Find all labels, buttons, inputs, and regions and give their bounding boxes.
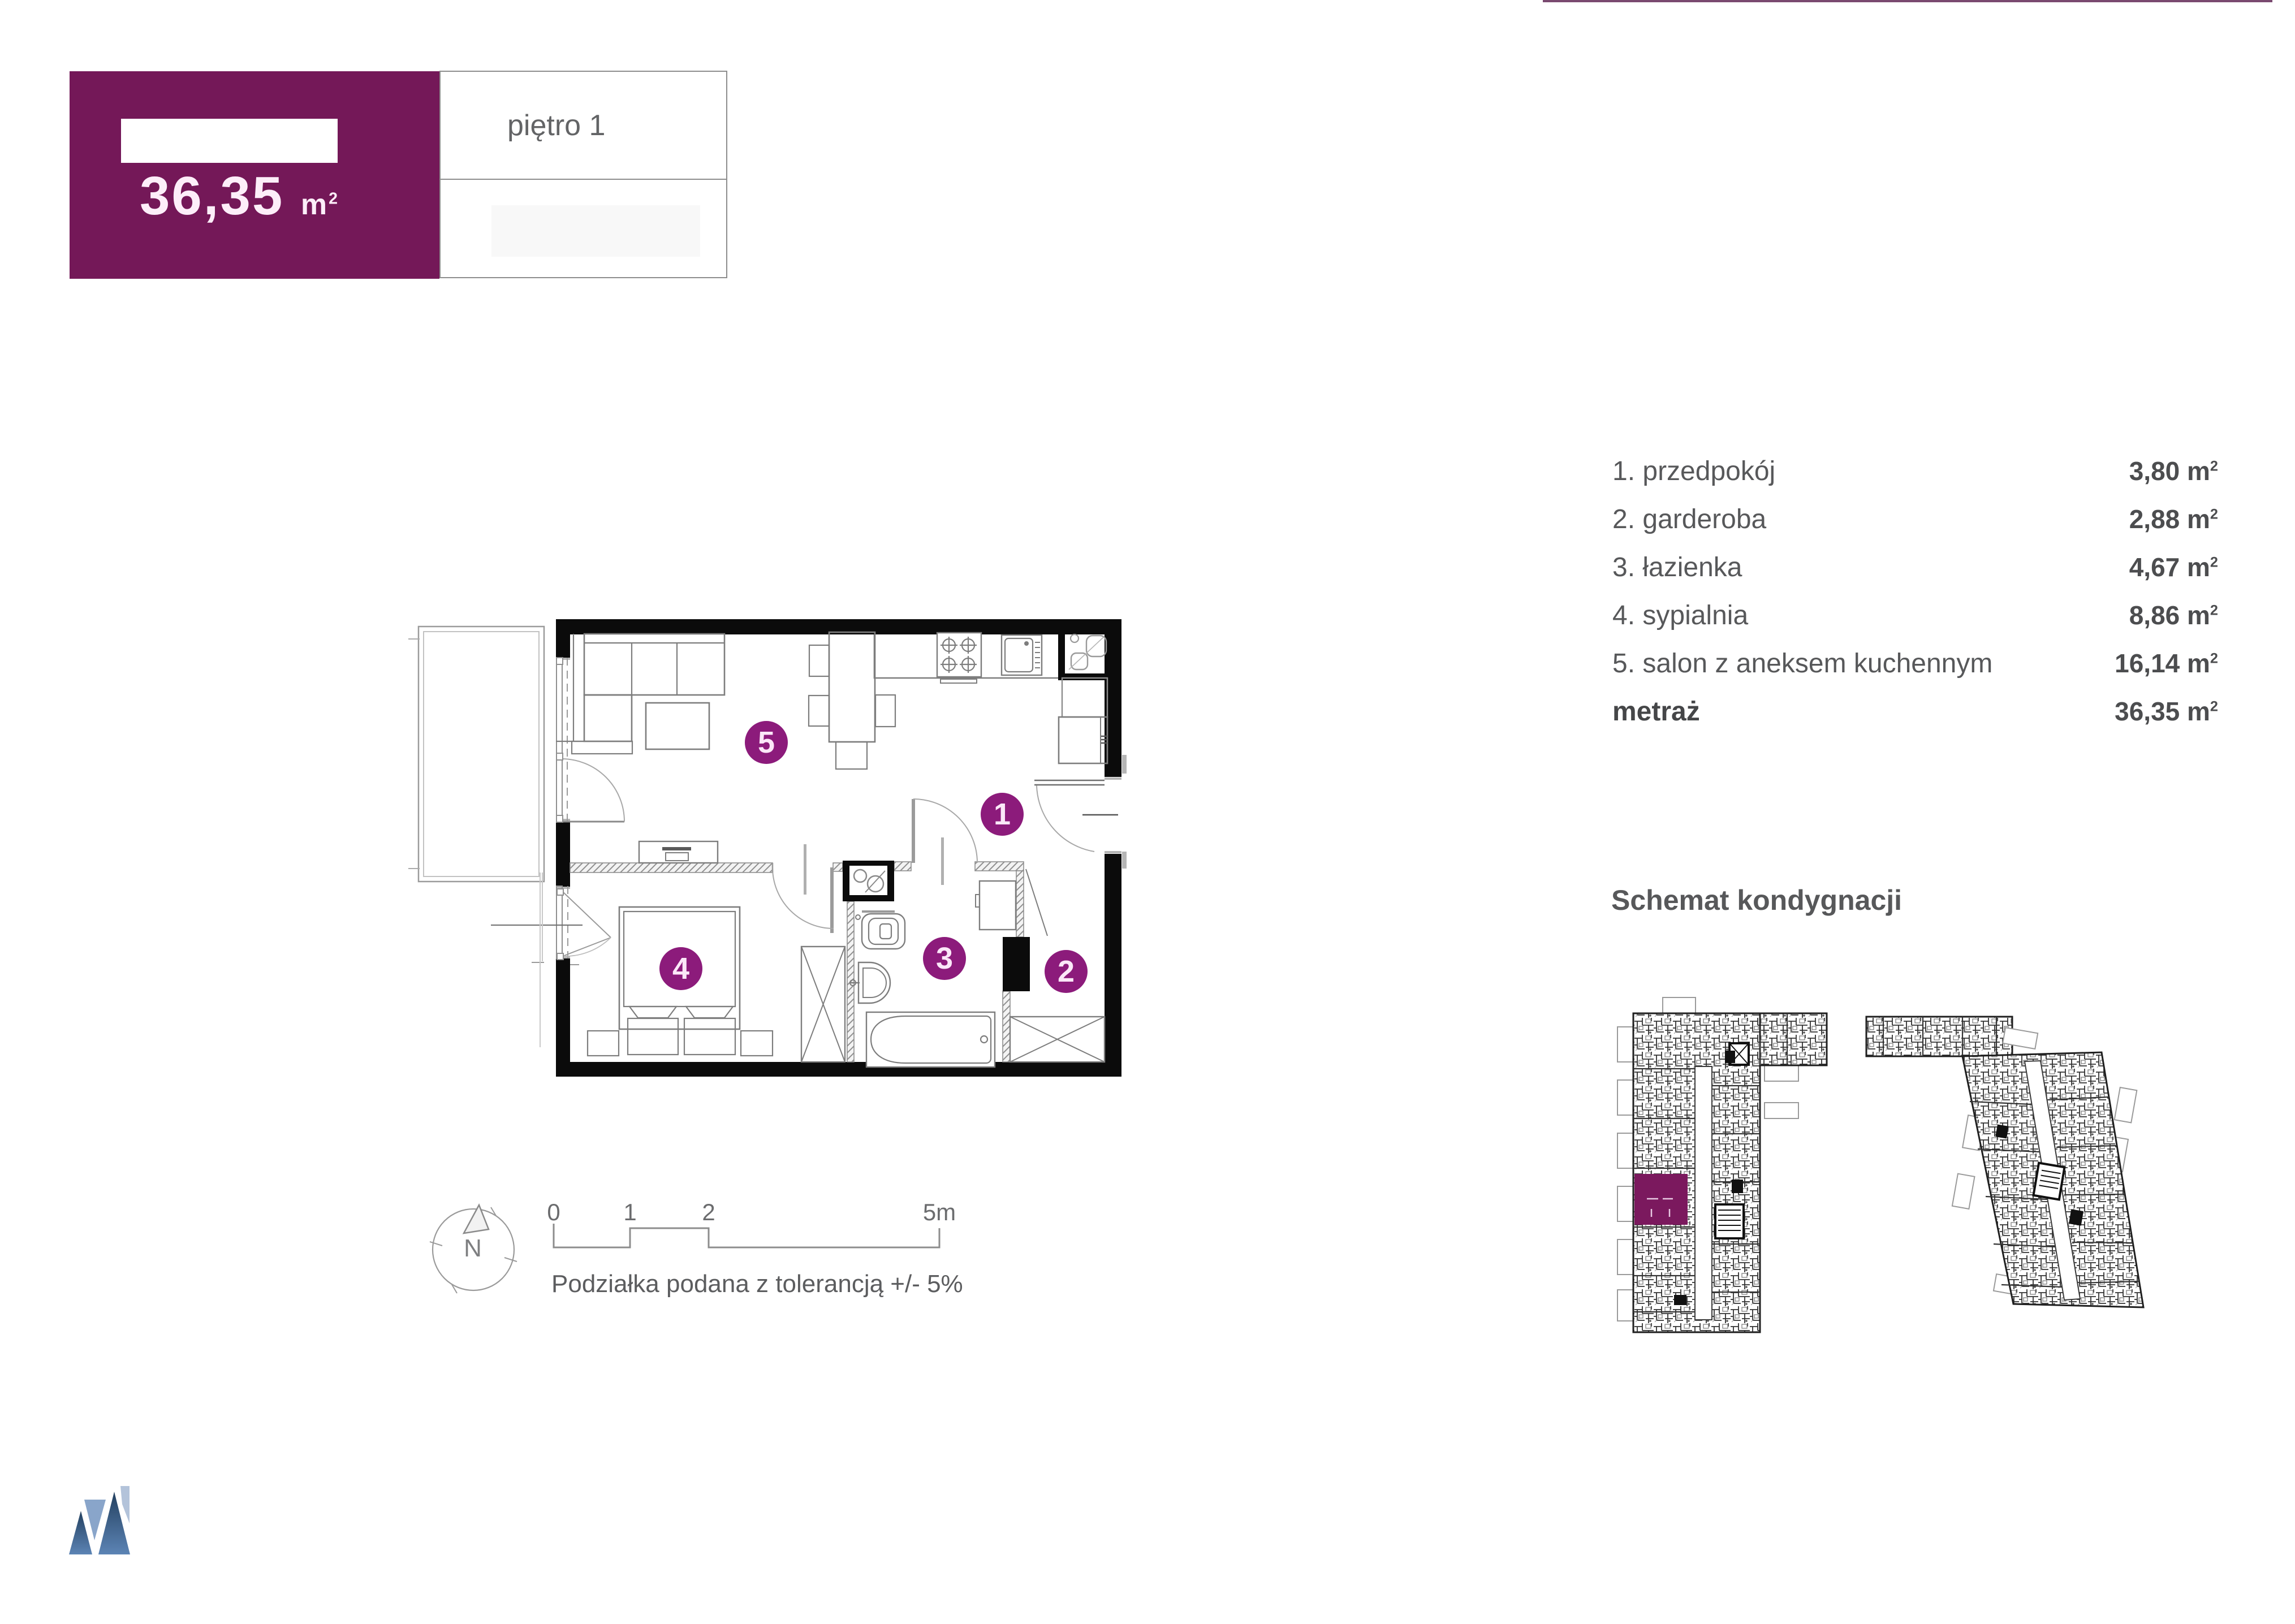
svg-text:1: 1	[994, 797, 1011, 831]
svg-text:5m: 5m	[923, 1199, 956, 1225]
svg-text:4: 4	[672, 952, 689, 986]
svg-text:3: 3	[936, 941, 953, 975]
svg-text:5: 5	[758, 725, 775, 759]
svg-text:1: 1	[623, 1199, 636, 1225]
svg-text:2: 2	[702, 1199, 715, 1225]
svg-text:2: 2	[1058, 954, 1075, 988]
svg-text:N: N	[464, 1234, 482, 1262]
svg-text:0: 0	[547, 1199, 560, 1225]
